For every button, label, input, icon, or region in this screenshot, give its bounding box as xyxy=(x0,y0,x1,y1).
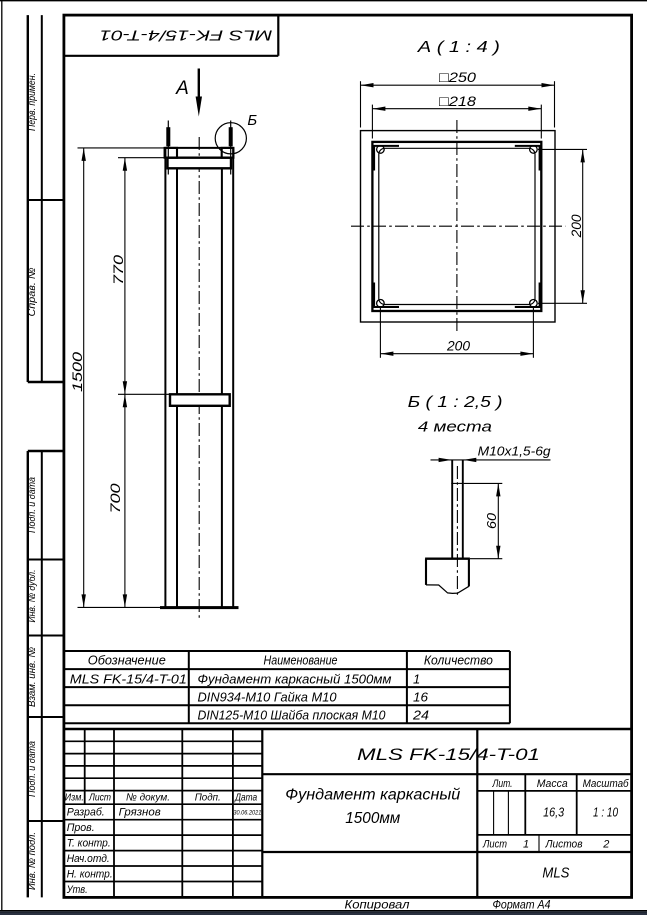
svg-text:Лит.: Лит. xyxy=(492,778,513,790)
svg-text:Формат А4: Формат А4 xyxy=(493,900,551,912)
svg-text:Масштаб: Масштаб xyxy=(583,778,630,790)
svg-text:770: 770 xyxy=(110,255,126,285)
svg-text:Наименование: Наименование xyxy=(264,654,338,668)
svg-text:16: 16 xyxy=(413,689,429,704)
svg-text:Подп. и дата: Подп. и дата xyxy=(26,741,38,797)
svg-text:Количество: Количество xyxy=(424,654,493,668)
svg-text:MLS FK-15/4-T-01: MLS FK-15/4-T-01 xyxy=(70,671,187,686)
svg-text:Подп.: Подп. xyxy=(195,792,221,804)
svg-text:□218: □218 xyxy=(439,93,476,109)
svg-text:Пров.: Пров. xyxy=(67,822,95,834)
svg-text:1 : 10: 1 : 10 xyxy=(593,804,619,819)
svg-text:4 места: 4 места xyxy=(418,419,492,436)
svg-text:1: 1 xyxy=(413,671,420,686)
svg-text:№ докум.: № докум. xyxy=(126,792,170,804)
svg-text:Копировал: Копировал xyxy=(345,900,411,912)
svg-text:Утв.: Утв. xyxy=(66,884,88,896)
svg-text:1500: 1500 xyxy=(69,352,85,392)
svg-text:Фундамент каркасный 1500мм: Фундамент каркасный 1500мм xyxy=(198,671,392,686)
svg-text:Нач.отд.: Нач.отд. xyxy=(67,853,110,865)
svg-text:Обозначение: Обозначение xyxy=(88,654,166,668)
svg-text:Взам. инв. №: Взам. инв. № xyxy=(26,647,38,707)
svg-text:MLS FK-15/4-T-01: MLS FK-15/4-T-01 xyxy=(357,746,540,764)
svg-text:Изм.: Изм. xyxy=(65,793,84,804)
svg-text:Б: Б xyxy=(247,112,257,129)
svg-text:MLS: MLS xyxy=(542,865,569,882)
svg-text:30.06.2021: 30.06.2021 xyxy=(233,810,261,816)
svg-text:1500мм: 1500мм xyxy=(345,810,400,827)
svg-text:700: 700 xyxy=(107,483,123,513)
svg-text:Инв. № дубл.: Инв. № дубл. xyxy=(26,570,38,623)
svg-text:Лист: Лист xyxy=(482,839,507,851)
svg-text:16,3: 16,3 xyxy=(543,804,565,819)
svg-text:Листов: Листов xyxy=(545,839,583,851)
svg-text:Дата: Дата xyxy=(234,792,257,804)
svg-text:Разраб.: Разраб. xyxy=(67,807,105,819)
svg-text:2: 2 xyxy=(602,839,609,851)
svg-text:60: 60 xyxy=(484,512,499,529)
svg-text:Н. контр.: Н. контр. xyxy=(67,868,113,880)
svg-text:А ( 1 : 4 ): А ( 1 : 4 ) xyxy=(417,39,500,56)
svg-text:Масса: Масса xyxy=(537,778,568,790)
svg-text:MLS FK-15/4-T-01: MLS FK-15/4-T-01 xyxy=(100,27,273,44)
svg-text:M10x1,5-6g: M10x1,5-6g xyxy=(478,444,552,459)
svg-text:DIN934-M10 Гайка М10: DIN934-M10 Гайка М10 xyxy=(198,689,338,704)
svg-text:24: 24 xyxy=(412,707,429,722)
svg-text:Грязнов: Грязнов xyxy=(119,807,161,819)
svg-text:Справ. №: Справ. № xyxy=(26,268,38,317)
svg-text:Б ( 1 : 2,5 ): Б ( 1 : 2,5 ) xyxy=(408,394,503,411)
svg-text:1: 1 xyxy=(523,839,529,851)
svg-text:DIN125-M10 Шайба плоская М10: DIN125-M10 Шайба плоская М10 xyxy=(198,707,387,722)
svg-text:□250: □250 xyxy=(439,69,476,85)
svg-text:Перв. примен.: Перв. примен. xyxy=(26,73,38,131)
svg-text:Инв. № подл.: Инв. № подл. xyxy=(26,832,38,890)
svg-text:Фундамент каркасный: Фундамент каркасный xyxy=(285,787,460,804)
svg-text:Подп. и дата: Подп. и дата xyxy=(26,477,38,533)
svg-text:200: 200 xyxy=(446,338,470,354)
svg-text:Лист: Лист xyxy=(88,793,111,804)
svg-text:200: 200 xyxy=(568,214,584,238)
svg-text:А: А xyxy=(175,78,189,99)
svg-text:Т. контр.: Т. контр. xyxy=(67,837,111,849)
